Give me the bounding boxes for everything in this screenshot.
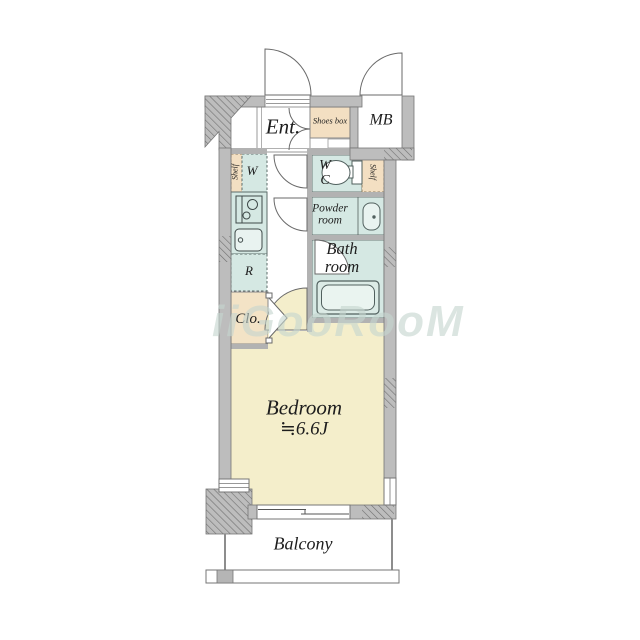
- label-wc-line1: W: [319, 158, 331, 173]
- label-wc-line2: C: [319, 173, 331, 188]
- label-balcony: Balcony: [274, 534, 333, 553]
- powder-room-door-swing-icon: [274, 198, 307, 231]
- label-bedroom: Bedroom ≒6.6J: [266, 396, 342, 439]
- balcony-railing-post: [217, 570, 233, 583]
- label-bath-line2: room: [325, 258, 359, 276]
- mb-bottom-wall-hatch: [384, 148, 412, 160]
- label-shelf-left: Shelf: [232, 164, 241, 180]
- wc-powder-wall: [307, 192, 384, 197]
- label-powder-room: Powder room: [312, 203, 348, 228]
- wc-door-swing-icon: [274, 155, 307, 188]
- bedroom-window-left: [219, 479, 249, 492]
- bathtub-icon: [317, 281, 379, 314]
- top-wall-mid: [310, 96, 362, 107]
- label-shelf-right: Shelf: [368, 164, 377, 180]
- balcony-sliding-window: [257, 505, 350, 519]
- right-wall-hatch-1: [384, 247, 396, 267]
- label-bedroom-size: ≒6.6J: [266, 419, 342, 440]
- kitchen-sink-icon: [235, 229, 262, 251]
- floor-plan: Ent. Shoes box MB Shelf W W C Shelf Powd…: [0, 0, 640, 640]
- label-shoes-box: Shoes box: [313, 116, 347, 125]
- bottom-left-wall-hatch: [206, 489, 252, 534]
- bedroom-bottom-wall-hatch: [362, 505, 394, 519]
- label-bath-line1: Bath: [325, 240, 359, 258]
- label-washer-space: W: [247, 164, 258, 178]
- label-closet: Clo.: [235, 311, 260, 327]
- left-wall: [219, 148, 231, 483]
- label-wc: W C: [319, 158, 331, 188]
- entrance-door-swing-icon: [265, 49, 311, 95]
- right-wall: [384, 160, 396, 505]
- left-wall-hatch: [219, 236, 231, 262]
- right-wall-hatch-2: [384, 378, 396, 408]
- label-powder-line1: Powder: [312, 203, 348, 215]
- label-meter-box: MB: [369, 111, 392, 128]
- label-bath-room: Bath room: [325, 240, 359, 276]
- bedroom-window-right: [384, 478, 396, 505]
- label-powder-line2: room: [312, 215, 348, 227]
- bath-bottom-wall: [307, 318, 384, 323]
- shoesbox-side-wall: [350, 107, 358, 148]
- label-bedroom-line1: Bedroom: [266, 396, 342, 419]
- meter-box-door-swing-icon: [360, 53, 402, 95]
- powder-basin-icon: [363, 203, 380, 230]
- label-entrance: Ent.: [266, 116, 300, 139]
- label-refrigerator-space: R: [245, 264, 253, 278]
- shoes-box-step: [328, 139, 350, 148]
- balcony-railing: [206, 570, 399, 583]
